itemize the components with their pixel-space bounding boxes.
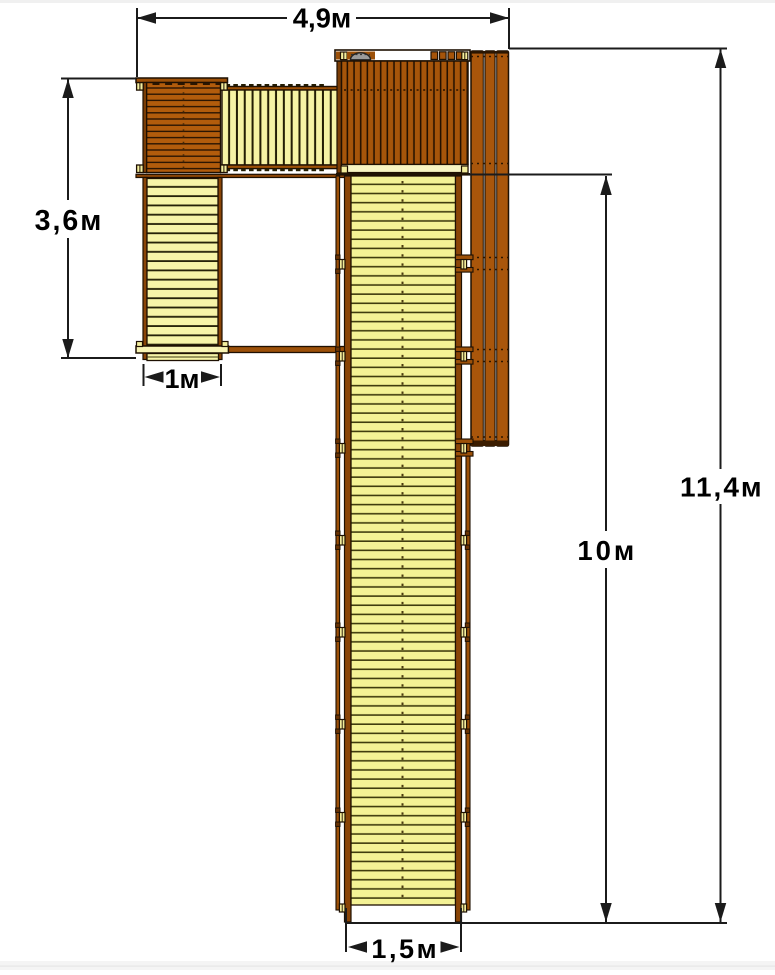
svg-text:1,5м: 1,5м	[371, 934, 439, 964]
svg-text:10м: 10м	[577, 535, 637, 566]
svg-text:11,4м: 11,4м	[680, 472, 764, 503]
svg-text:1м: 1м	[165, 364, 200, 394]
svg-text:4,9м: 4,9м	[293, 3, 352, 34]
svg-text:3,6м: 3,6м	[35, 205, 104, 237]
